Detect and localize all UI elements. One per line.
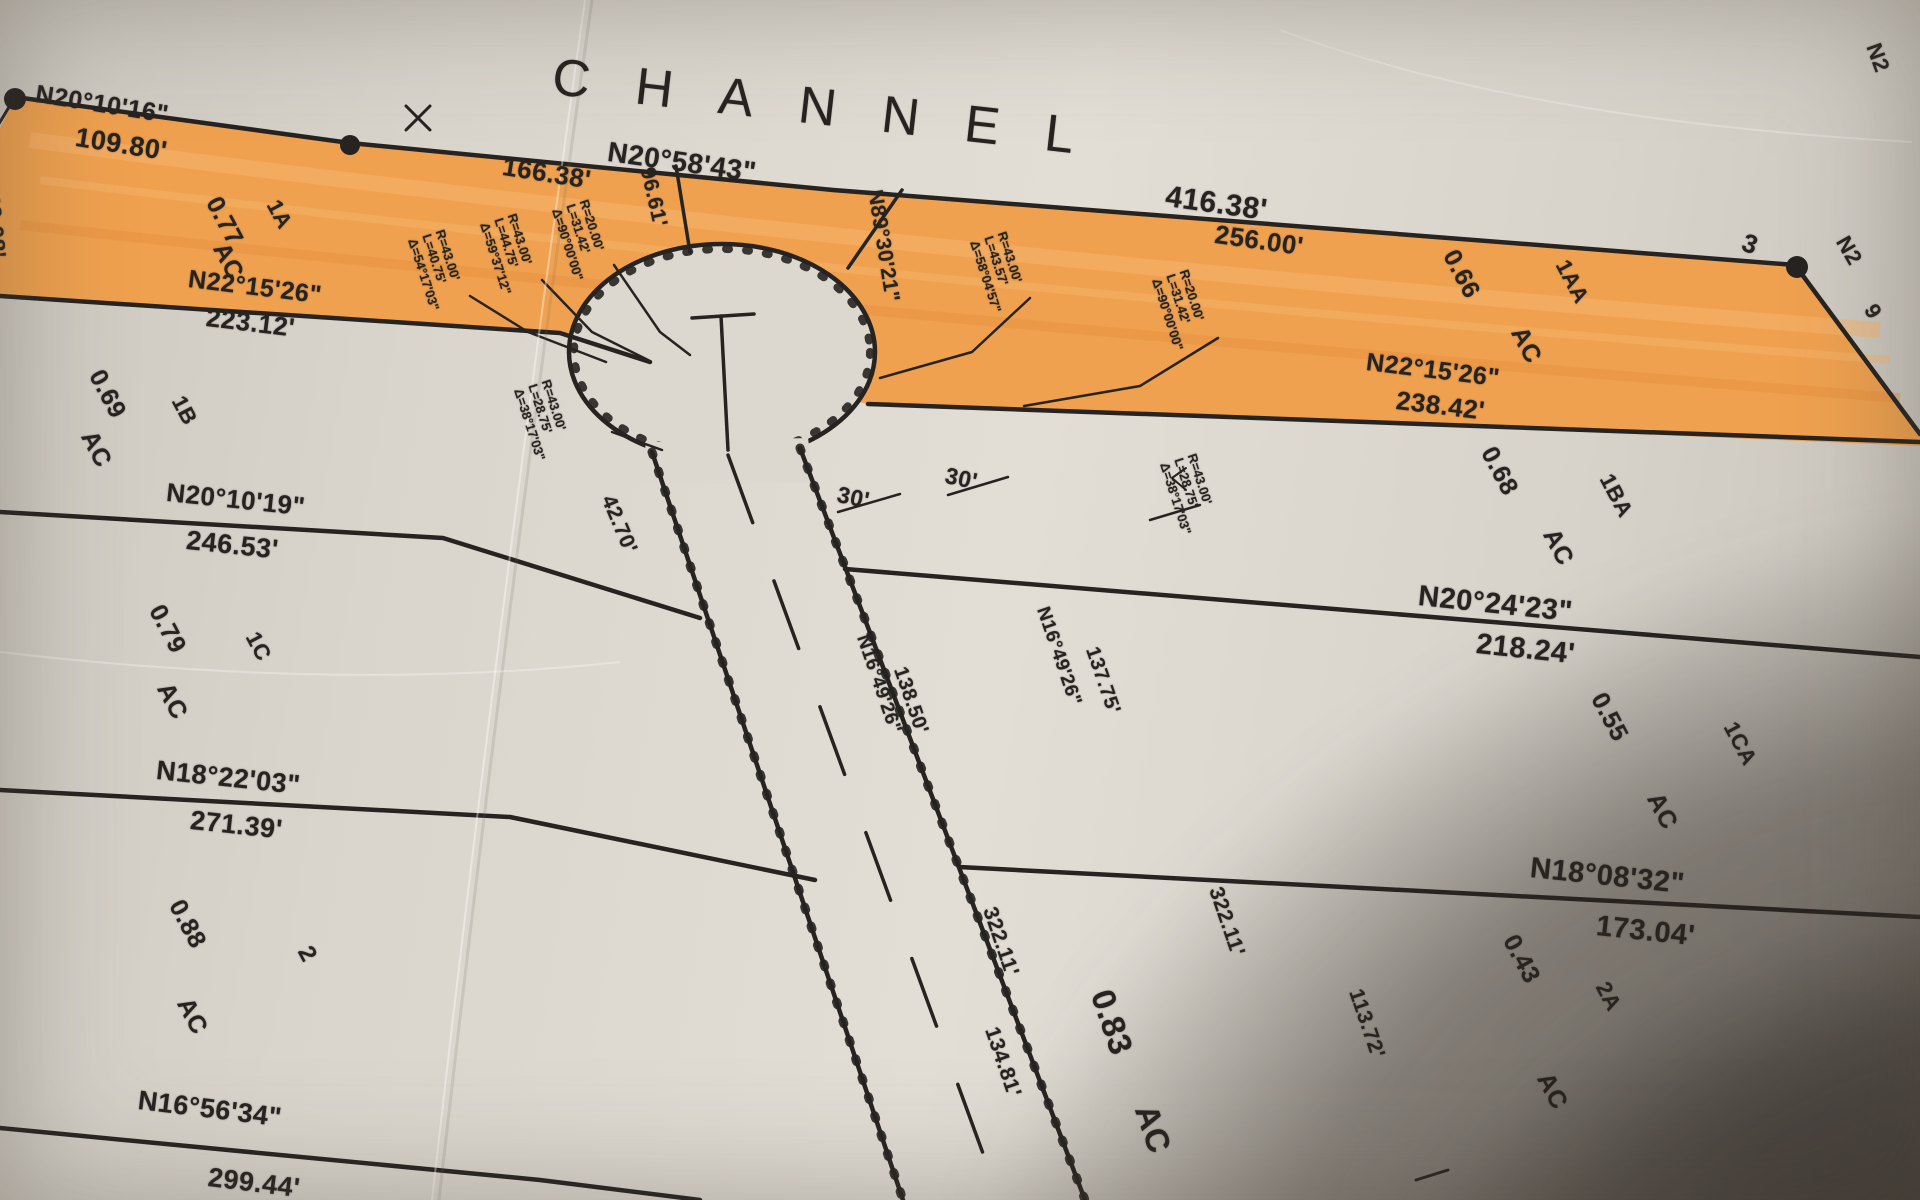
curve-note-6: R=43.00' L=28.75' Δ=38°17'03" (511, 378, 575, 462)
bearing-n2024: N20°24'23" (1417, 580, 1575, 628)
bearing-top-left: N20°10'16" (34, 80, 171, 129)
lot-1aa-ac: AC (1505, 322, 1547, 368)
bearing-n1656: N16°56'34" (136, 1085, 283, 1133)
distance-299: 299.44' (206, 1162, 302, 1200)
bearing-n1808: N18°08'32" (1529, 852, 1687, 900)
distance-11372: 113.72' (1344, 986, 1390, 1061)
label-layer: CHANNELN20°10'16"109.80'142.08'N20°58'43… (0, 0, 1920, 1200)
lot-1ca-ac: AC (1641, 788, 1683, 834)
distance-top-left: 109.80' (73, 122, 169, 166)
distance-166: 166.38' (500, 152, 593, 195)
curve-note-3: R=20.00' L=31.42' Δ=90°00'00" (549, 198, 613, 282)
distance-173: 173.04' (1595, 910, 1697, 953)
distance-246: 246.53' (185, 525, 280, 565)
lot-1ba-id: 1BA (1594, 470, 1637, 522)
plat-photo: CHANNEL (0, 0, 1920, 1200)
road-lot-ac: AC (1127, 1100, 1178, 1158)
lot-1aa-acreage: 0.66 (1437, 245, 1486, 303)
distance-238: 238.42' (1394, 386, 1486, 426)
curve-note-4: R=43.00' L=43.57' Δ=58°04'57" (967, 230, 1031, 314)
lot-1ca-id: 1CA (1718, 718, 1761, 770)
distance-256: 256.00' (1213, 220, 1305, 261)
point-3: 3 (1738, 228, 1762, 260)
lot-1b-id: 1B (166, 392, 201, 429)
bearing-channel: N20°58'43" (606, 136, 759, 188)
distance-322-west: 322.11' (978, 904, 1024, 979)
curve-note-2: R=43.00' L=44.75' Δ=59°37'12" (477, 212, 541, 296)
distance-271: 271.39' (189, 805, 284, 845)
lot-1ba-ac: AC (1537, 524, 1579, 570)
lot-2a-id: 2A (1590, 978, 1625, 1015)
lot-1aa-id: 1AA (1550, 256, 1593, 308)
curve-note-1: R=43.00' L=40.75' Δ=54°17'03" (405, 228, 469, 312)
curve-note-5: R=20.00' L=31.42' Δ=90°00'00" (1149, 268, 1213, 352)
road-bearing-east: N16°49'26" (1032, 604, 1086, 709)
lot-1b-acreage: 0.69 (83, 365, 132, 423)
lot-1ca-acreage: 0.55 (1585, 688, 1634, 746)
lot-2-acreage: 0.88 (163, 895, 212, 953)
distance-4270: 42.70' (596, 492, 641, 557)
edge-fragment-3: N2 (1861, 40, 1894, 76)
bearing-n2010: N20°10'19" (165, 478, 307, 522)
distance-13775: 137.75' (1081, 644, 1125, 717)
halfwidth-30-left: 30' (835, 482, 872, 514)
distance-218: 218.24' (1475, 628, 1577, 671)
distance-13481: 134.81' (980, 1024, 1026, 1100)
lot-1ba-acreage: 0.68 (1475, 442, 1524, 500)
lot-2-ac: AC (171, 993, 213, 1039)
bearing-n1822: N18°22'03" (155, 755, 302, 800)
lot-2a-ac: AC (1531, 1068, 1573, 1114)
lot-1c-acreage: 0.79 (143, 600, 192, 658)
lot-1b-ac: AC (75, 426, 117, 472)
distance-322-east: 322.11' (1204, 884, 1250, 959)
bearing-n8930: N89°30'21" (863, 188, 904, 304)
bearing-n2215-right: N22°15'26" (1365, 348, 1502, 392)
distance-left-edge: 142.08' (0, 178, 10, 260)
lot-2a-acreage: 0.43 (1497, 930, 1546, 988)
edge-fragment-2: 9 (1859, 300, 1887, 323)
distance-223: 223.12' (204, 303, 296, 343)
road-lot-acreage: 0.83 (1083, 985, 1140, 1060)
lot-1c-ac: AC (151, 678, 193, 724)
lot-1c-id: 1C (240, 628, 275, 665)
curve-note-7: R=43.00' L=28.75' Δ=38°17'03" (1157, 452, 1221, 536)
halfwidth-30-right: 30' (943, 463, 980, 495)
lot-2-id: 2 (291, 942, 321, 967)
lot-1a-id: 1A (261, 196, 296, 233)
edge-fragment-1: N2 (1831, 232, 1867, 270)
